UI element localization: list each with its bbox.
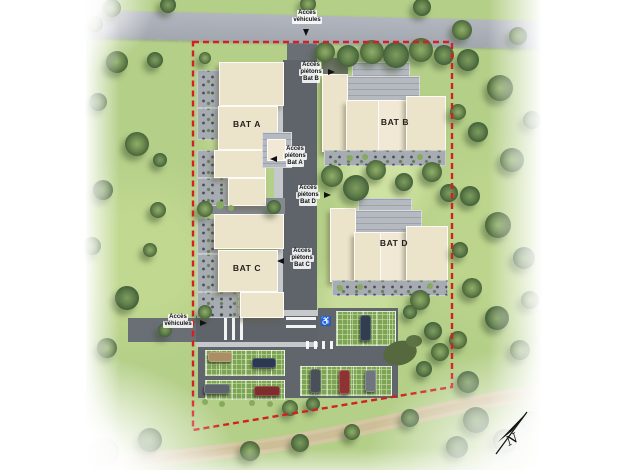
arrow-down-icon <box>303 29 309 36</box>
arrow-left-icon <box>277 258 284 264</box>
pedestrian-access-bat-a-label: Accès piétons Bat A <box>278 146 312 167</box>
arrow-right-icon <box>324 192 331 198</box>
arrow-left-icon <box>270 156 277 162</box>
pedestrian-access-bat-b-label: Accès piétons Bat B <box>293 62 329 83</box>
vehicle-access-west-label: Accès véhicules <box>156 314 200 328</box>
arrow-right-icon <box>328 69 335 75</box>
pedestrian-access-bat-d-label: Accès piétons Bat D <box>291 185 325 206</box>
pedestrian-access-bat-c-label: Accès piétons Bat C <box>285 248 319 269</box>
vehicle-access-north-label: Accès véhicules <box>285 10 329 24</box>
site-plan-canvas: ♿ BAT A BAT B BAT C BAT D <box>0 0 640 470</box>
arrow-right-icon <box>200 320 207 326</box>
